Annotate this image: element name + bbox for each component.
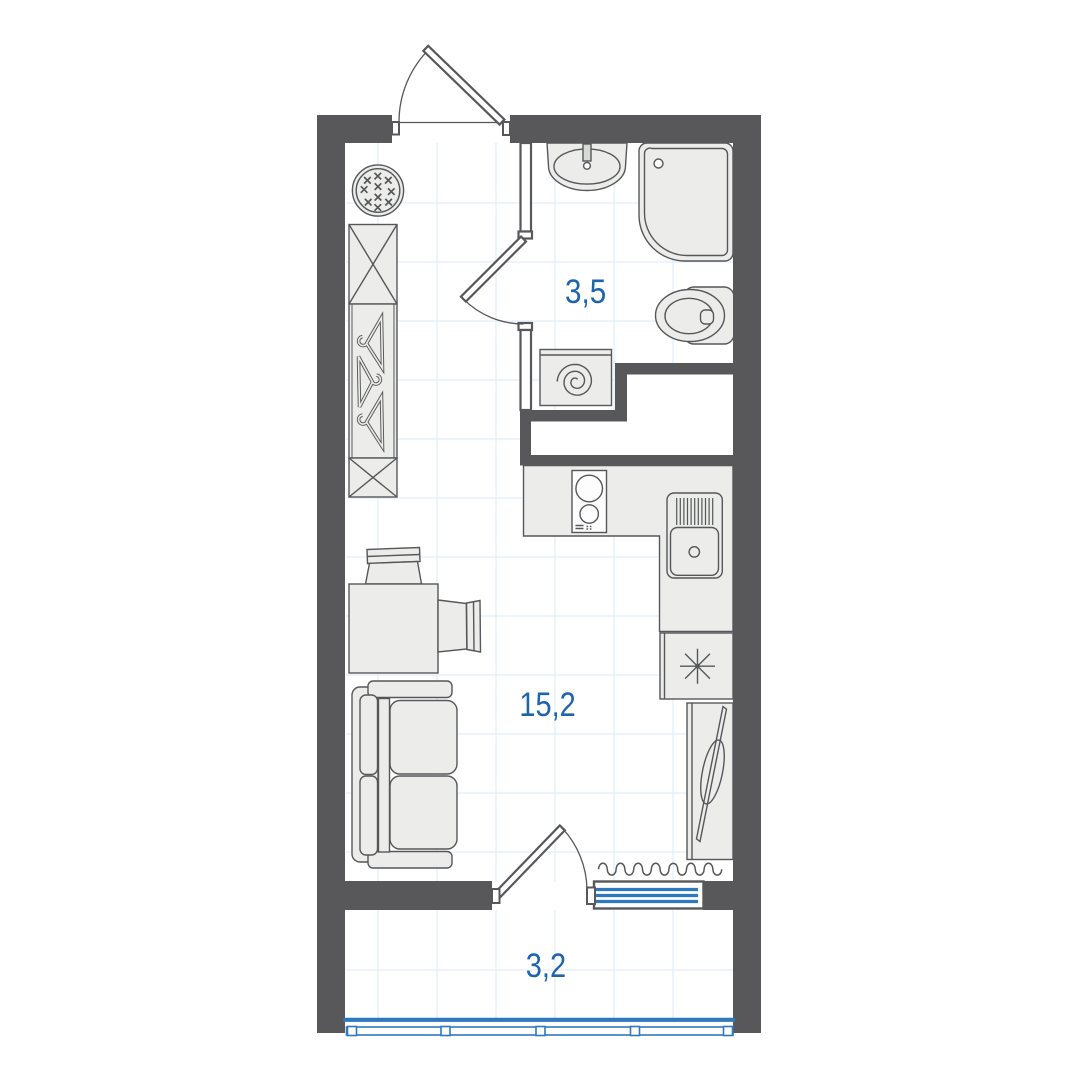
svg-text:15,2: 15,2	[519, 686, 575, 724]
svg-text:3,5: 3,5	[565, 273, 606, 311]
svg-text:3,2: 3,2	[526, 947, 566, 985]
